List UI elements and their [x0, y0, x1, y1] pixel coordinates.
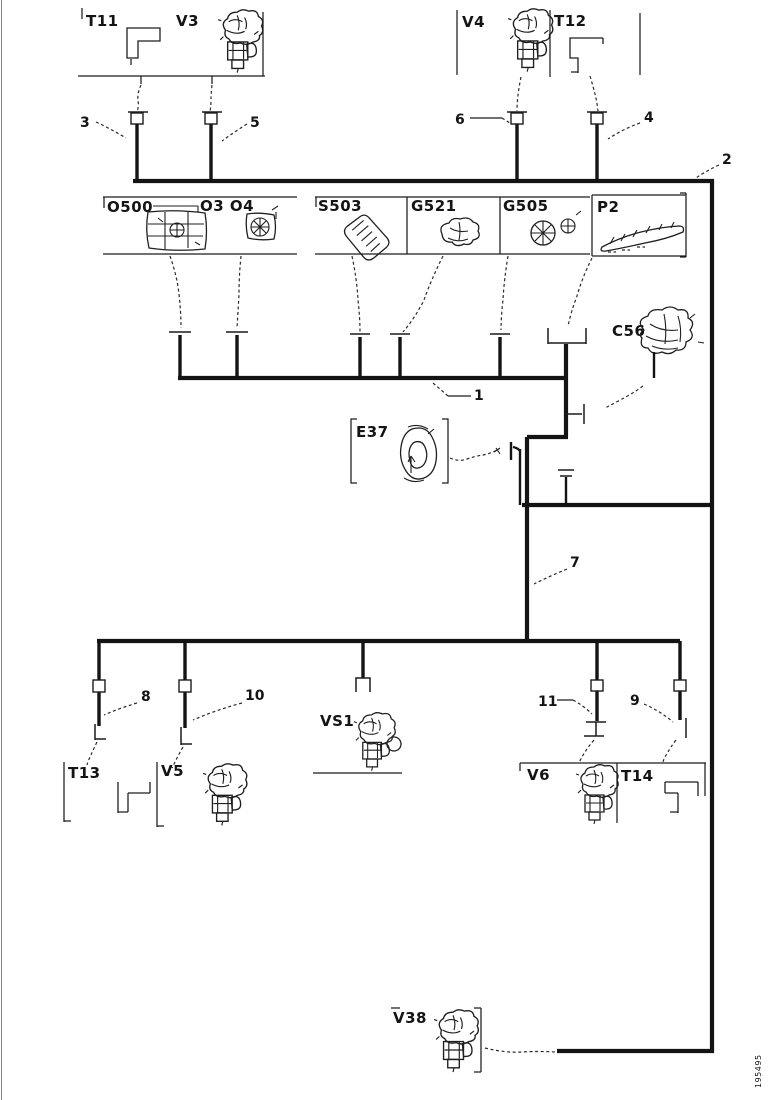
wire-number-1: 1 [474, 388, 484, 404]
t13-bracket-icon [118, 782, 150, 813]
v5-wire-end [181, 727, 192, 745]
wire-main-trunk [133, 181, 712, 1051]
wire-sketch-g521 [403, 256, 443, 332]
label-o500: O500 [107, 198, 153, 216]
label-t12: T12 [554, 12, 587, 30]
box-s503-g521-g505: S503 G521 G505 [315, 197, 590, 264]
wire-number-9: 9 [630, 693, 640, 709]
label-t11: T11 [86, 12, 119, 30]
box-o500-o3o4: O500 O3 O4 [103, 197, 297, 254]
wire-number-2: 2 [722, 152, 732, 168]
box-v38: V38 [391, 1008, 481, 1072]
leader-7 [534, 569, 567, 584]
leader-10 [193, 703, 242, 720]
connector-symbol [205, 113, 217, 124]
e37-leader-mark [494, 448, 500, 454]
v4-valve-icon [508, 9, 553, 72]
leader-6 [502, 118, 510, 123]
g505-sensor-icon [531, 211, 581, 245]
v6-valve-icon [576, 765, 618, 824]
leader-11 [573, 700, 592, 714]
t11-bracket-icon [127, 28, 160, 58]
wire-sketch-t12 [590, 76, 598, 111]
label-v5: V5 [161, 762, 184, 780]
wire-sketch-t13 [87, 742, 97, 765]
wire-number-7: 7 [570, 555, 580, 571]
e37-pump-icon [401, 425, 437, 481]
leader-2 [696, 165, 719, 178]
s503-switch-icon [341, 211, 392, 265]
wire-sketch-v4 [517, 77, 521, 111]
box-v6-t14: V6 T14 [520, 763, 706, 824]
label-v4: V4 [462, 13, 485, 31]
wire-stems-top [137, 124, 597, 181]
wire-sketch-s503 [352, 256, 360, 332]
label-t14: T14 [621, 767, 654, 785]
wire-sketch-v6 [579, 740, 594, 763]
connector-break [674, 680, 686, 691]
g521-sensor-icon [441, 218, 479, 246]
t12-bracket-icon [570, 38, 603, 73]
label-v3: V3 [176, 12, 199, 30]
connector-row-middle [169, 328, 586, 344]
label-v38: V38 [393, 1009, 427, 1027]
e37-leader [450, 449, 499, 460]
connector-break [179, 680, 191, 692]
wire-number-5: 5 [250, 115, 260, 131]
p2-cable-icon [601, 222, 683, 252]
connector-symbol [169, 332, 510, 334]
vs1-valve-detail [387, 737, 401, 751]
label-vs1: VS1 [320, 712, 354, 730]
connector-break [93, 680, 105, 692]
connector-row-top [128, 112, 607, 124]
wire-e37-drop [513, 447, 520, 505]
wire-sketch-o500 [170, 256, 181, 328]
wire-number-8: 8 [141, 689, 151, 705]
box-v4-t12: V4 T12 [457, 9, 640, 77]
v38-wire-sketch [485, 1048, 556, 1052]
connector-symbol [131, 113, 143, 124]
v38-valve-icon [434, 1010, 478, 1072]
c56-engine-icon [640, 307, 704, 378]
connector-symbol [591, 113, 603, 124]
label-g521: G521 [411, 197, 457, 215]
leader-1 [433, 383, 448, 396]
wire-sketch-t14 [663, 740, 676, 762]
label-e37: E37 [356, 423, 389, 441]
box-p2: P2 [592, 193, 686, 257]
label-s503: S503 [318, 197, 362, 215]
wiring-diagram-page: T11 V3 V4 T12 3 5 6 4 2 [0, 0, 778, 1100]
leader-5 [222, 124, 247, 141]
wire-feed-jog [527, 344, 568, 641]
box-e37: E37 [351, 419, 511, 483]
leader-9 [644, 704, 673, 722]
mid-connector-marks [558, 470, 574, 476]
wire-number-3: 3 [80, 115, 90, 131]
label-o3o4: O3 O4 [200, 197, 254, 215]
label-p2: P2 [597, 198, 619, 216]
wire-sketch-g505 [501, 256, 508, 330]
wire-sketch-p2 [568, 258, 592, 326]
wire-sketch-v3 [210, 85, 212, 112]
connector-break [591, 680, 603, 691]
wire-stems-middle [180, 335, 500, 378]
v3-valve-icon [218, 10, 263, 73]
v5-valve-icon [203, 764, 247, 826]
leader-8 [104, 703, 137, 715]
label-g505: G505 [503, 197, 549, 215]
vs1-valve-icon [354, 713, 395, 771]
wire-number-6: 6 [455, 112, 465, 128]
leader-4 [608, 123, 640, 139]
label-t13: T13 [68, 764, 101, 782]
vs1-connector [356, 678, 370, 692]
label-v6: V6 [527, 766, 550, 784]
vs1-group: VS1 [313, 712, 402, 773]
wire-sketch-t11 [137, 85, 141, 112]
wire-sketch-o3o4 [237, 256, 241, 328]
box-wire-stubs [141, 76, 212, 84]
wire-number-4: 4 [644, 110, 654, 126]
c56-group: C56 [566, 307, 704, 424]
o500-transmission-icon [147, 206, 207, 250]
wiring-diagram-canvas: T11 V3 V4 T12 3 5 6 4 2 [0, 0, 778, 1100]
connector-symbol [511, 113, 523, 124]
t13-wire-end [95, 724, 106, 740]
c56-connector-bracket [548, 328, 586, 344]
wire-number-10: 10 [245, 688, 265, 704]
box-t13-v5: T13 V5 [64, 762, 247, 827]
t14-bracket-icon [665, 782, 698, 813]
c56-lower-connector [566, 404, 584, 424]
leader-3 [96, 122, 126, 138]
v6-wire-end [584, 722, 606, 736]
wire-number-11: 11 [538, 694, 557, 710]
c56-leader [605, 386, 643, 408]
box-t11-v3: T11 V3 [78, 8, 265, 84]
doc-number: 195495 [754, 1054, 763, 1088]
